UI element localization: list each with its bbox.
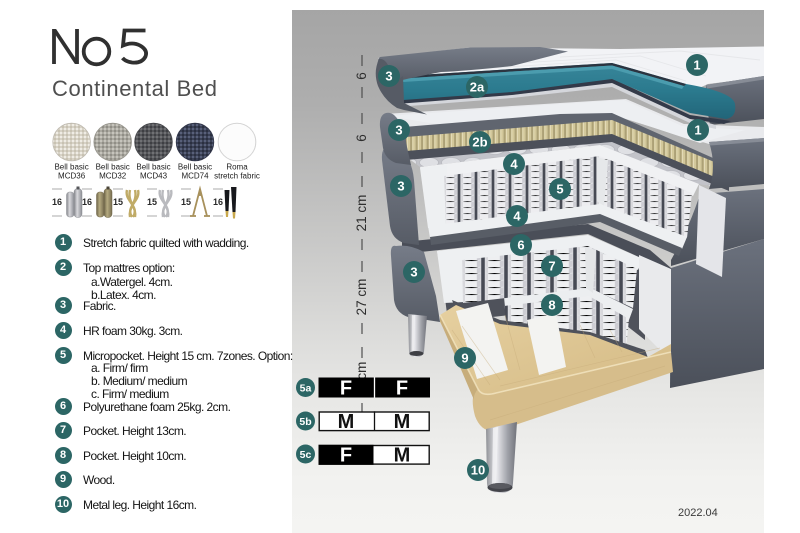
svg-text:1: 1 (693, 58, 700, 73)
svg-text:F: F (396, 378, 408, 400)
svg-text:stretch fabric: stretch fabric (214, 172, 260, 181)
svg-text:MCD43: MCD43 (140, 172, 168, 181)
svg-text:21 cm: 21 cm (354, 195, 369, 232)
svg-text:15: 15 (113, 197, 123, 207)
svg-text:2022.04: 2022.04 (678, 507, 718, 519)
svg-text:5a: 5a (300, 383, 312, 395)
svg-text:MCD36: MCD36 (58, 172, 86, 181)
svg-text:Bell basic: Bell basic (178, 163, 212, 172)
svg-text:Roma: Roma (226, 163, 248, 172)
svg-text:8: 8 (548, 298, 555, 313)
svg-text:6: 6 (354, 72, 369, 80)
svg-text:15: 15 (147, 197, 157, 207)
svg-text:MCD74: MCD74 (181, 172, 209, 181)
svg-text:2b: 2b (472, 135, 487, 150)
svg-text:9: 9 (461, 351, 468, 366)
svg-text:16: 16 (82, 197, 92, 207)
svg-text:1: 1 (694, 123, 701, 138)
svg-text:4: 4 (513, 209, 521, 224)
svg-text:F: F (340, 378, 352, 400)
svg-text:F: F (340, 445, 352, 467)
svg-text:M: M (394, 411, 411, 433)
svg-text:6: 6 (354, 134, 369, 142)
svg-text:Bell basic: Bell basic (96, 163, 130, 172)
svg-text:3: 3 (395, 123, 402, 138)
svg-text:M: M (338, 411, 355, 433)
svg-text:5c: 5c (300, 449, 312, 461)
svg-text:5: 5 (556, 182, 563, 197)
svg-text:3: 3 (385, 69, 392, 84)
svg-text:15: 15 (181, 197, 191, 207)
svg-text:2a: 2a (470, 80, 485, 95)
svg-text:10: 10 (471, 463, 485, 478)
svg-text:7: 7 (548, 259, 555, 274)
svg-text:27 cm: 27 cm (354, 279, 369, 316)
svg-text:Bell basic: Bell basic (136, 163, 170, 172)
svg-text:16: 16 (213, 197, 223, 207)
svg-text:3: 3 (397, 179, 404, 194)
svg-text:MCD32: MCD32 (99, 172, 127, 181)
svg-text:M: M (394, 445, 411, 467)
svg-text:5b: 5b (299, 416, 311, 428)
svg-text:Bell basic: Bell basic (54, 163, 88, 172)
svg-text:16: 16 (52, 197, 62, 207)
svg-text:4: 4 (510, 157, 518, 172)
svg-text:6: 6 (517, 238, 524, 253)
svg-text:3: 3 (410, 265, 417, 280)
